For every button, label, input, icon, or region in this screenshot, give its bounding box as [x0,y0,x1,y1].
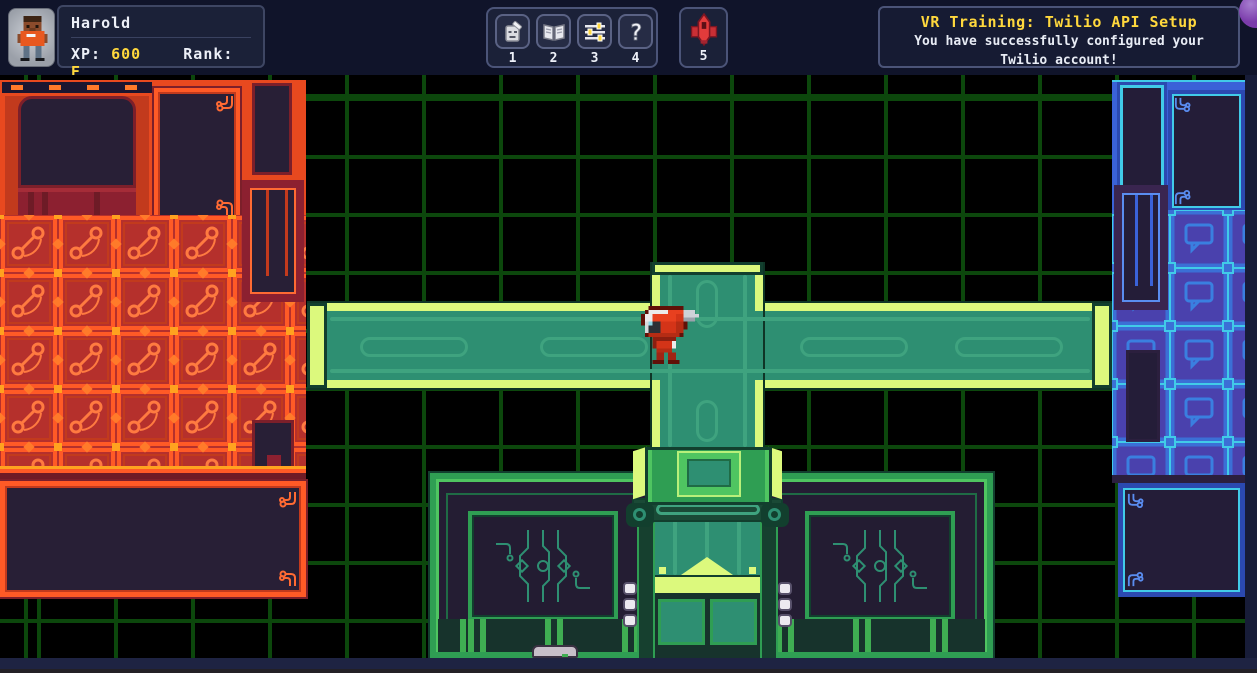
door-medallion-left [626,503,654,527]
wall-recess [1126,350,1160,442]
doorway-floor [655,593,760,658]
notification-title: VR Training: Twilio API Setup [880,13,1238,31]
lane-marking [800,337,908,357]
door-medallion-right [761,503,789,527]
lintel-plate [656,504,760,515]
door-column-right [760,517,778,658]
door-chevron [681,557,733,575]
xp-value: 600 [111,45,141,63]
journal-book-icon [541,19,567,45]
right-edge-strip [1245,75,1257,673]
hotbar-slot-5-number: 5 [700,49,708,64]
settings-sliders-icon [582,19,608,45]
door-lights-right [778,582,792,630]
door-threshold [655,575,760,593]
wall-recess [1120,85,1164,189]
grey-cart-object [532,645,578,658]
corner-menu-button[interactable] [1239,0,1257,28]
notification-body: You have successfully configured your Tw… [880,31,1238,71]
rank-label: Rank: [183,45,233,63]
player-avatar [8,8,55,67]
lane-line [330,369,1090,373]
arch-doorway [18,96,136,188]
maroon-gap [0,473,306,481]
blue-gap [1112,475,1245,483]
bottom-bar [0,658,1257,673]
blue-circuit-panel-top [1168,90,1245,212]
hotbar-slot-1[interactable]: 1 [495,14,530,66]
wall-niche [252,420,294,472]
lane-marking [540,337,648,357]
lane-line [743,275,747,447]
orange-phone-wing [0,80,306,597]
mission-notification: VR Training: Twilio API Setup You have s… [878,6,1240,68]
pillar-detail [1122,193,1160,302]
orange-circuit-panel-bottom [0,481,306,597]
blue-chat-wing [1112,80,1245,597]
hotbar-slot-4-number: 4 [632,51,640,66]
hotbar-slot-5-ship[interactable]: 5 [679,7,728,68]
walkway-end-cap-left [307,303,327,388]
blue-circuit-panel-bottom [1118,483,1245,597]
lane-marking [360,337,468,357]
player-name: Harold [71,14,251,32]
divider [71,37,251,38]
circuit-motif [825,524,935,608]
walkway-end-cap-top [652,262,763,275]
help-question-icon: ? [623,19,649,45]
player-info-panel: Harold XP: 600 Rank: E [57,5,265,68]
hotbar: 1 2 [486,7,658,68]
blue-pillar [1114,185,1168,310]
red-ship-icon [689,13,719,47]
lane-marking [955,337,1063,357]
threshold-light [659,567,666,574]
xp-label: XP: [71,45,101,63]
hotbar-slot-3-number: 3 [591,51,599,66]
green-circuit-panel-left [468,511,618,621]
orange-pillar [242,180,304,302]
green-circuit-panel-right [805,511,955,621]
door-lights-left [623,582,637,630]
threshold-light [749,567,756,574]
lane-marking [696,400,718,442]
door-column-left [637,517,655,658]
pillar-detail [250,188,296,294]
green-terminal-building [430,447,993,658]
hotbar-slot-2[interactable]: 2 [536,14,571,66]
hud-topbar: Harold XP: 600 Rank: E [0,0,1257,75]
game-viewport[interactable] [0,75,1245,658]
avatar-pixel-art [14,13,51,64]
stone-idol-icon [500,19,526,45]
arch-top-trim [2,82,152,93]
lane-marking [696,280,718,328]
tower-cap-panel [677,451,741,497]
hotbar-slot-2-number: 2 [550,51,558,66]
walkway-end-cap-right [1092,303,1112,388]
hotbar-slot-3[interactable]: 3 [577,14,612,66]
hotbar-slot-1-number: 1 [509,51,517,66]
game-window: Harold XP: 600 Rank: E [0,0,1257,673]
player-character [641,306,699,368]
hotbar-slot-4[interactable]: ? 4 [618,14,653,66]
svg-text:?: ? [629,21,642,45]
orange-circuit-panel-top [154,88,240,223]
circuit-motif [488,524,598,608]
wall-recess [252,83,292,175]
